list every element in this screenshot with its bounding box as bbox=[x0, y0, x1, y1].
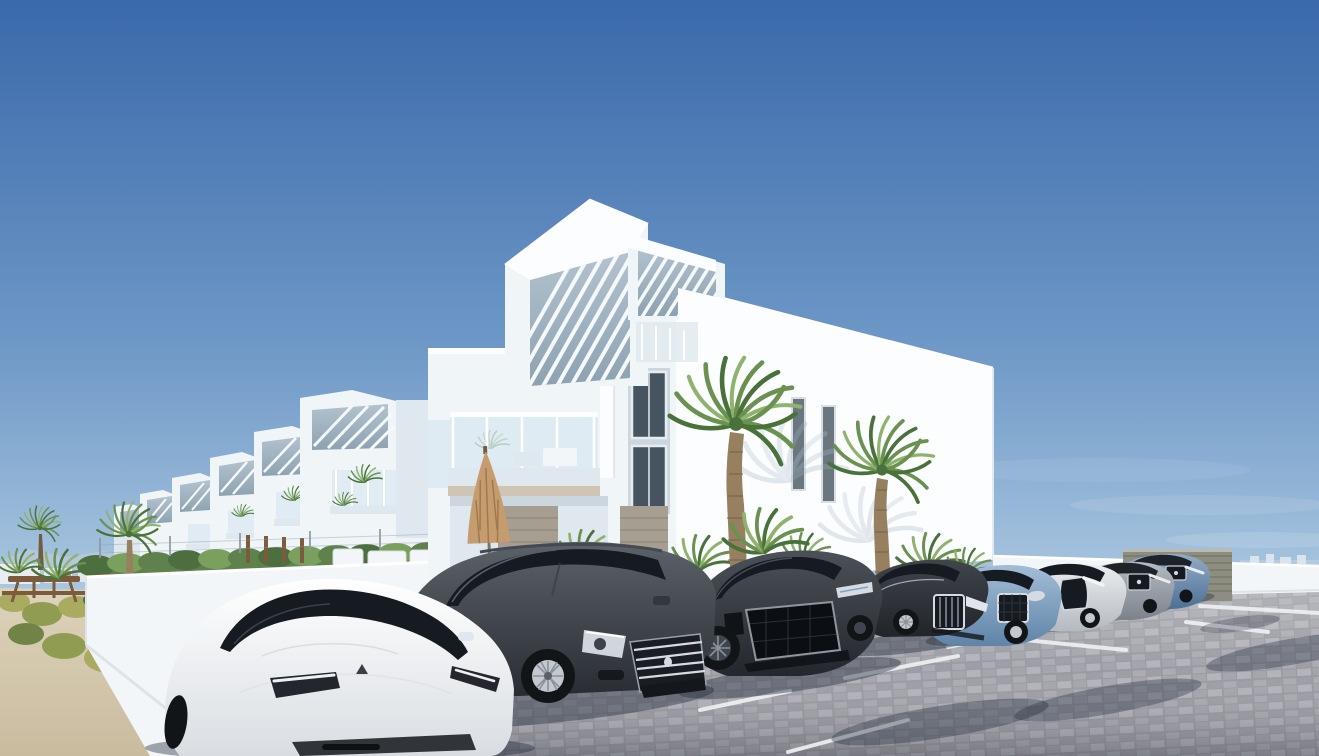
mercedes-star-icon bbox=[1174, 571, 1178, 575]
mesh-grille bbox=[998, 594, 1028, 622]
scene bbox=[0, 0, 1319, 756]
side-mirror bbox=[194, 630, 212, 640]
balcony-chair bbox=[514, 452, 540, 466]
balcony-chair bbox=[543, 448, 577, 466]
peugeot-badge-icon bbox=[664, 657, 672, 667]
side-mirror bbox=[458, 632, 474, 641]
vertical-slat-grille bbox=[934, 595, 964, 629]
render-canvas bbox=[0, 0, 1319, 756]
side-mirror bbox=[653, 596, 670, 605]
fog-light bbox=[598, 670, 624, 680]
balcony bbox=[428, 412, 600, 496]
spindle-grille bbox=[1060, 577, 1087, 610]
honeycomb-grille bbox=[746, 602, 840, 660]
mercedes-star-icon bbox=[1137, 580, 1141, 584]
roof-terrace-rail bbox=[636, 322, 698, 362]
